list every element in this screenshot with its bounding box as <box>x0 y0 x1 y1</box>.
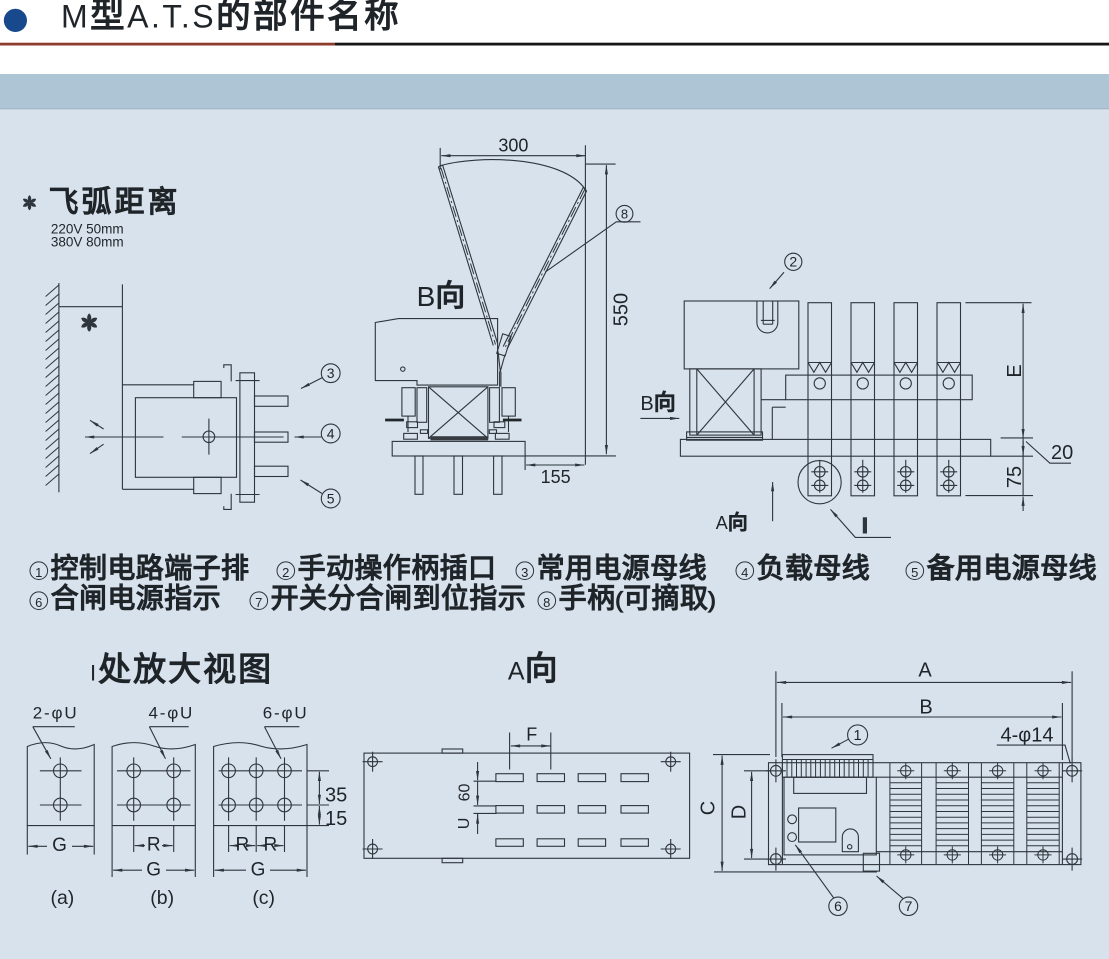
svg-text:飞弧距离: 飞弧距离 <box>49 186 181 219</box>
svg-text:2: 2 <box>282 565 289 580</box>
svg-text:R: R <box>264 835 278 856</box>
svg-text:F: F <box>526 725 537 745</box>
svg-text:(a): (a) <box>50 887 74 909</box>
svg-text:2-φU: 2-φU <box>33 703 79 722</box>
svg-text:2: 2 <box>789 254 797 270</box>
svg-text:A向: A向 <box>716 511 748 534</box>
svg-text:A: A <box>918 660 932 682</box>
svg-text:G: G <box>146 860 161 881</box>
svg-text:1: 1 <box>854 728 862 744</box>
svg-text:550: 550 <box>611 293 633 326</box>
svg-text:手柄(可摘取): 手柄(可摘取) <box>559 583 716 614</box>
svg-text:U: U <box>456 818 473 830</box>
svg-text:60: 60 <box>457 784 474 802</box>
svg-text:手动操作柄插口: 手动操作柄插口 <box>298 553 497 584</box>
svg-text:I处放大视图: I处放大视图 <box>90 651 273 688</box>
svg-text:G: G <box>52 835 67 856</box>
svg-text:75: 75 <box>1004 466 1026 488</box>
svg-text:20: 20 <box>1051 442 1073 464</box>
svg-text:B: B <box>919 697 932 719</box>
svg-text:D: D <box>729 805 751 819</box>
svg-text:G: G <box>251 860 266 881</box>
svg-text:6: 6 <box>834 898 842 914</box>
svg-text:(c): (c) <box>252 887 275 909</box>
svg-text:开关分合闸到位指示: 开关分合闸到位指示 <box>271 583 527 614</box>
svg-text:备用电源母线: 备用电源母线 <box>927 553 1097 584</box>
svg-text:6: 6 <box>35 595 42 610</box>
svg-text:4-φ14: 4-φ14 <box>1001 725 1054 747</box>
svg-text:B向: B向 <box>417 280 466 313</box>
svg-text:4: 4 <box>741 565 748 580</box>
svg-text:7: 7 <box>255 595 262 610</box>
svg-text:155: 155 <box>541 467 571 487</box>
svg-text:7: 7 <box>905 898 913 914</box>
svg-text:C: C <box>698 801 720 815</box>
svg-text:R: R <box>236 835 250 856</box>
svg-text:3: 3 <box>327 365 335 381</box>
svg-text:4: 4 <box>327 426 335 442</box>
svg-text:35: 35 <box>325 785 347 807</box>
svg-text:380V 80mm: 380V 80mm <box>51 235 124 250</box>
svg-text:5: 5 <box>911 565 918 580</box>
svg-text:4-φU: 4-φU <box>149 703 195 722</box>
svg-text:1: 1 <box>35 565 42 580</box>
svg-text:5: 5 <box>327 491 335 507</box>
svg-text:R: R <box>147 835 161 856</box>
svg-text:6-φU: 6-φU <box>263 703 309 722</box>
svg-text:E: E <box>1004 364 1026 377</box>
svg-text:M型A.T.S的部件名称: M型A.T.S的部件名称 <box>61 0 401 36</box>
svg-text:8: 8 <box>543 595 550 610</box>
svg-text:常用电源母线: 常用电源母线 <box>537 553 707 584</box>
svg-text:(b): (b) <box>150 887 174 909</box>
svg-text:控制电路端子排: 控制电路端子排 <box>51 553 250 584</box>
svg-text:B向: B向 <box>640 390 675 415</box>
svg-text:3: 3 <box>521 565 528 580</box>
svg-text:负载母线: 负载母线 <box>757 553 871 584</box>
svg-text:300: 300 <box>498 136 528 156</box>
svg-text:15: 15 <box>325 808 347 830</box>
svg-text:合闸电源指示: 合闸电源指示 <box>51 583 221 614</box>
svg-text:8: 8 <box>621 207 628 222</box>
